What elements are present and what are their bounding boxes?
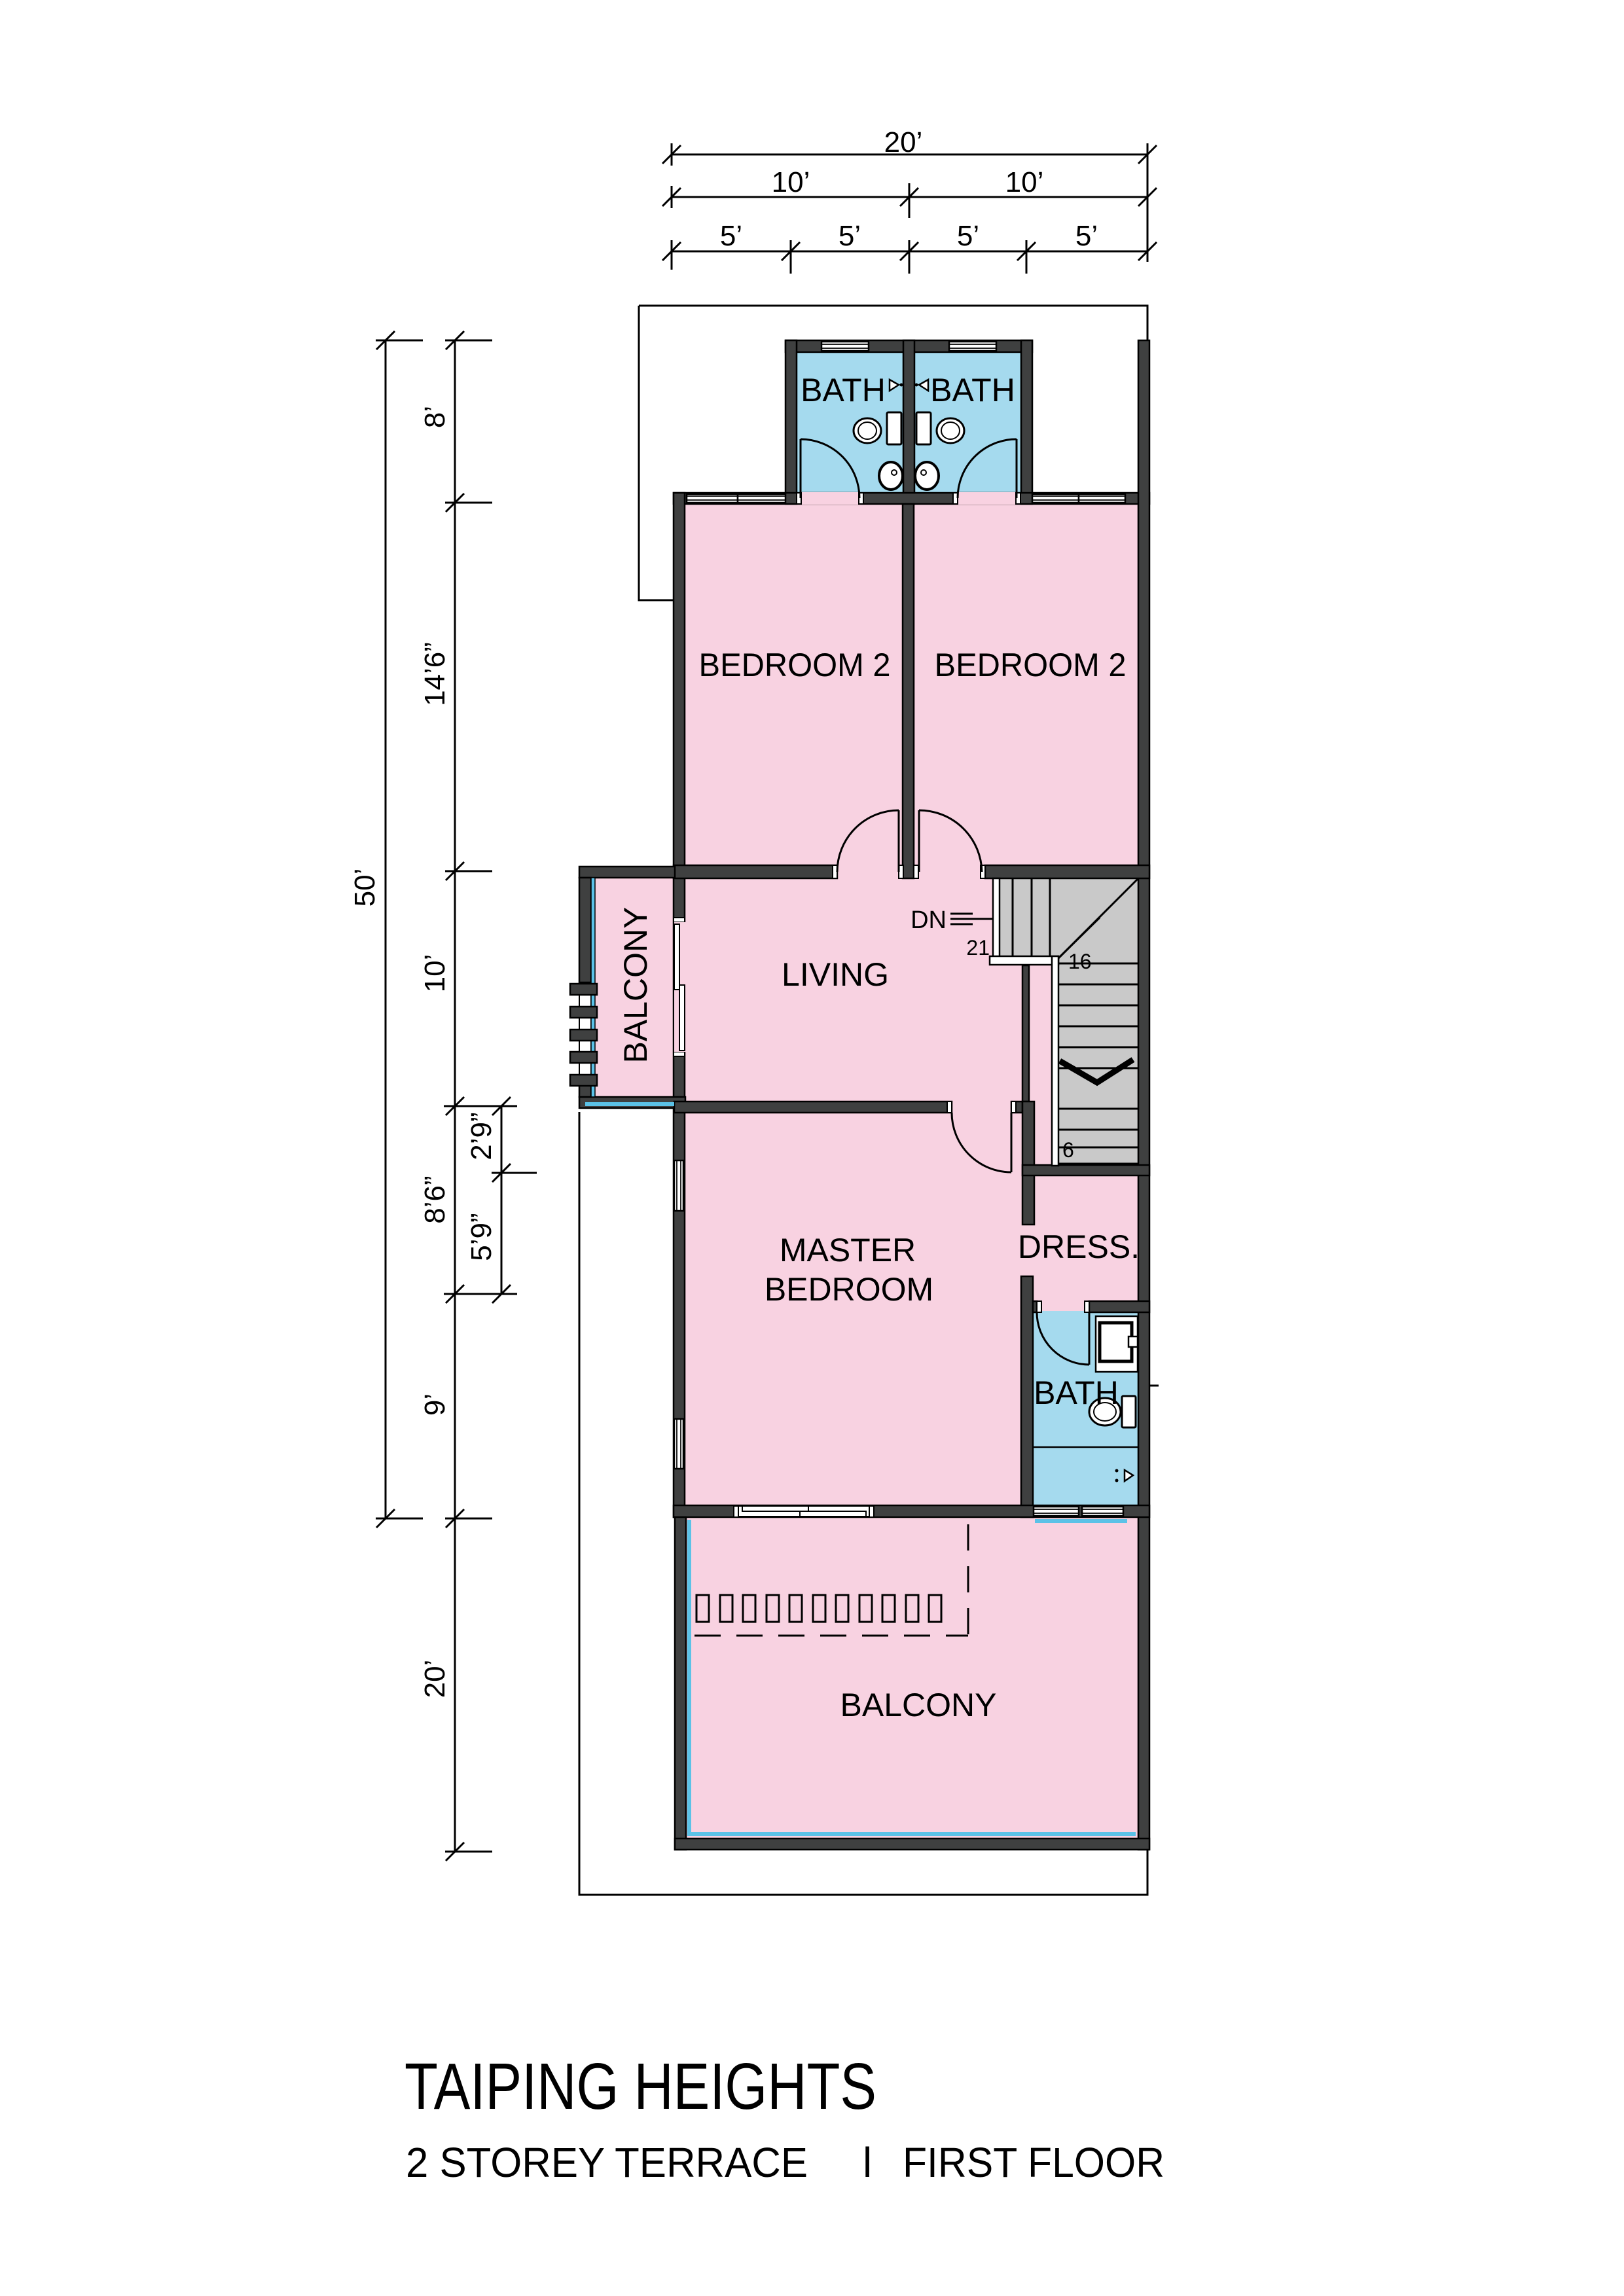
svg-text:5’: 5’ [957,220,979,252]
svg-text:21: 21 [966,936,990,960]
svg-text:BALCONY: BALCONY [840,1687,997,1723]
svg-text:9’: 9’ [419,1393,451,1416]
svg-text:LIVING: LIVING [782,956,889,993]
svg-text:6: 6 [1062,1138,1074,1162]
svg-text:BEDROOM 2: BEDROOM 2 [935,647,1127,683]
svg-text:BALCONY: BALCONY [617,907,654,1064]
svg-text:BEDROOM 2: BEDROOM 2 [699,647,891,683]
svg-text:BATH: BATH [930,372,1015,408]
svg-text:5’: 5’ [1075,220,1098,252]
svg-text:10’: 10’ [772,166,810,198]
svg-text:5’: 5’ [720,220,742,252]
svg-text:DN: DN [911,906,947,934]
svg-text:8’6”: 8’6” [419,1175,451,1223]
svg-text:8’: 8’ [419,406,451,428]
svg-text:14’6”: 14’6” [419,642,451,706]
svg-text:20’: 20’ [419,1660,451,1698]
svg-text:TAIPING HEIGHTS: TAIPING HEIGHTS [405,2050,876,2123]
svg-text:DRESS.: DRESS. [1018,1229,1140,1265]
svg-text:10’: 10’ [419,954,451,993]
svg-text:5’9”: 5’9” [465,1213,497,1261]
svg-text:2 STOREY TERRACE: 2 STOREY TERRACE [406,2139,808,2186]
svg-text:20’: 20’ [884,126,923,158]
svg-text:5’: 5’ [839,220,861,252]
svg-text:10’: 10’ [1005,166,1044,198]
svg-text:BATH: BATH [801,372,886,408]
svg-text:50’: 50’ [349,869,381,907]
svg-text:BEDROOM: BEDROOM [765,1271,933,1308]
svg-text:BATH: BATH [1034,1374,1119,1411]
svg-text:FIRST FLOOR: FIRST FLOOR [903,2139,1164,2186]
svg-text:16: 16 [1068,950,1092,973]
svg-text:l: l [863,2139,872,2186]
svg-text:MASTER: MASTER [780,1232,916,1268]
svg-text:2’9”: 2’9” [465,1112,497,1160]
